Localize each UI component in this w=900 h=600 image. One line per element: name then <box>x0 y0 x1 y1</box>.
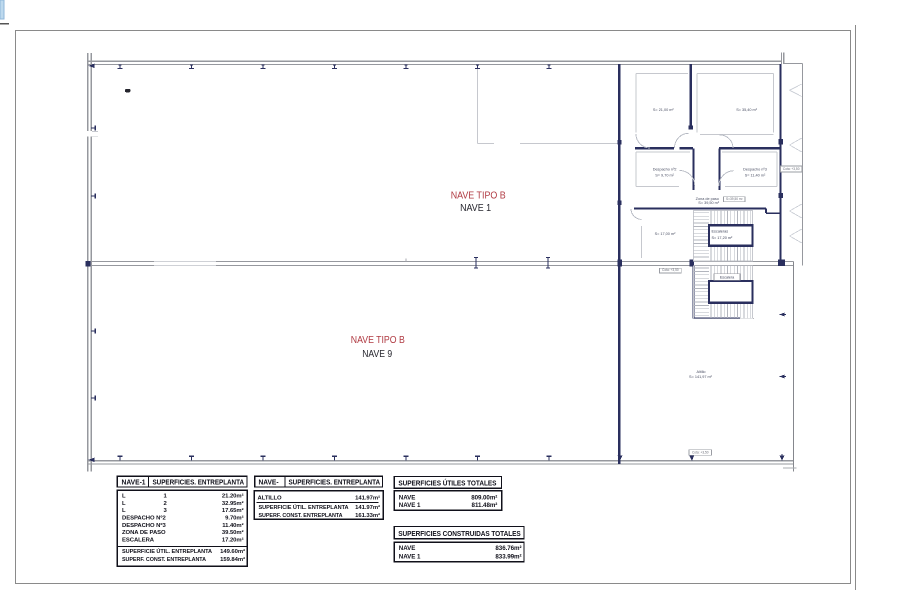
svg-text:Cota: +3,50: Cota: +3,50 <box>692 450 709 454</box>
svg-text:833.99m²: 833.99m² <box>495 553 521 560</box>
svg-text:32.95m²: 32.95m² <box>222 500 244 507</box>
svg-text:NAVE TIPO B: NAVE TIPO B <box>351 335 405 346</box>
svg-text:DESPACHO Nº3: DESPACHO Nº3 <box>122 523 166 529</box>
svg-text:161.33m²: 161.33m² <box>355 512 380 519</box>
svg-text:836.76m²: 836.76m² <box>495 545 521 552</box>
svg-text:S= 39,50 m²: S= 39,50 m² <box>698 201 720 205</box>
svg-text:11.40m²: 11.40m² <box>222 522 243 529</box>
svg-text:809.00m²: 809.00m² <box>471 494 497 501</box>
svg-text:S=39,50 m²: S=39,50 m² <box>726 197 743 201</box>
svg-text:NAVE TIPO B: NAVE TIPO B <box>451 191 506 202</box>
svg-text:SUPERFICIES. ENTREPLANTA: SUPERFICIES. ENTREPLANTA <box>289 480 381 487</box>
svg-text:NAVE 1: NAVE 1 <box>399 553 421 560</box>
svg-text:ALTILLO: ALTILLO <box>258 495 283 501</box>
svg-text:Zona de paso: Zona de paso <box>696 197 719 201</box>
svg-text:NAVE 1: NAVE 1 <box>399 502 421 509</box>
svg-text:SUPERFICIES CONSTRUIDAS TOTALE: SUPERFICIES CONSTRUIDAS TOTALES <box>398 531 521 538</box>
svg-text:Despacho nº3: Despacho nº3 <box>743 168 767 172</box>
svg-text:17.20m²: 17.20m² <box>222 537 244 544</box>
svg-text:39.50m²: 39.50m² <box>222 529 244 536</box>
svg-text:S= 141,97 m²: S= 141,97 m² <box>689 375 713 379</box>
svg-text:NAVE: NAVE <box>399 545 416 552</box>
svg-text:Cota: +3,50: Cota: +3,50 <box>783 167 800 171</box>
svg-text:S= 35,40 m²: S= 35,40 m² <box>736 108 758 112</box>
svg-text:Despacho nº2: Despacho nº2 <box>653 168 677 172</box>
svg-text:811.48m²: 811.48m² <box>472 502 498 509</box>
svg-text:141.97m²: 141.97m² <box>355 504 380 511</box>
svg-text:S= 17,00 m²: S= 17,00 m² <box>655 232 677 236</box>
svg-text:ESCALERA: ESCALERA <box>122 538 155 544</box>
svg-text:21.20m²: 21.20m² <box>222 493 244 500</box>
svg-text:Escaleras: Escaleras <box>712 230 729 234</box>
svg-text:SUPERFICIE ÚTIL. ENTREPLANTA: SUPERFICIE ÚTIL. ENTREPLANTA <box>259 504 350 511</box>
svg-text:141.97m²: 141.97m² <box>355 494 380 501</box>
svg-text:S= 17,20 m²: S= 17,20 m² <box>712 236 734 240</box>
svg-text:17.65m²: 17.65m² <box>222 507 244 514</box>
svg-text:SUPERFICIE ÚTIL. ENTREPLANTA: SUPERFICIE ÚTIL. ENTREPLANTA <box>122 548 213 555</box>
svg-text:Cota: +3,50: Cota: +3,50 <box>662 268 679 272</box>
svg-text:NAVE-: NAVE- <box>259 480 280 487</box>
svg-text:SUPERFICIES ÚTILES TOTALES: SUPERFICIES ÚTILES TOTALES <box>398 479 496 488</box>
svg-text:159.84m²: 159.84m² <box>220 556 245 563</box>
svg-text:ZONA DE PASO: ZONA DE PASO <box>122 530 166 536</box>
svg-text:SUPERF. CONST. ENTREPLANTA: SUPERF. CONST. ENTREPLANTA <box>122 557 207 563</box>
svg-text:L: L <box>122 501 126 507</box>
svg-text:L: L <box>122 494 126 500</box>
svg-text:Escalera: Escalera <box>720 276 735 280</box>
svg-text:SUPERF. CONST. ENTREPLANTA: SUPERF. CONST. ENTREPLANTA <box>259 513 344 519</box>
svg-text:NAVE: NAVE <box>399 494 416 501</box>
svg-text:NAVE 1: NAVE 1 <box>460 203 491 214</box>
svg-text:SUPERFICIES. ENTREPLANTA: SUPERFICIES. ENTREPLANTA <box>153 480 245 487</box>
svg-text:149.60m²: 149.60m² <box>220 548 245 555</box>
svg-text:S= 21,00 m²: S= 21,00 m² <box>653 108 675 112</box>
svg-text:9.70m²: 9.70m² <box>225 514 243 521</box>
svg-text:DESPACHO Nº2: DESPACHO Nº2 <box>122 515 166 521</box>
svg-text:L: L <box>122 508 126 514</box>
svg-text:S= 9,70 m²: S= 9,70 m² <box>655 173 674 177</box>
svg-text:Altillo: Altillo <box>696 370 705 374</box>
svg-text:S= 11,40 m²: S= 11,40 m² <box>745 173 766 177</box>
svg-text:NAVE 9: NAVE 9 <box>362 349 392 360</box>
svg-text:NAVE-1: NAVE-1 <box>122 480 146 487</box>
